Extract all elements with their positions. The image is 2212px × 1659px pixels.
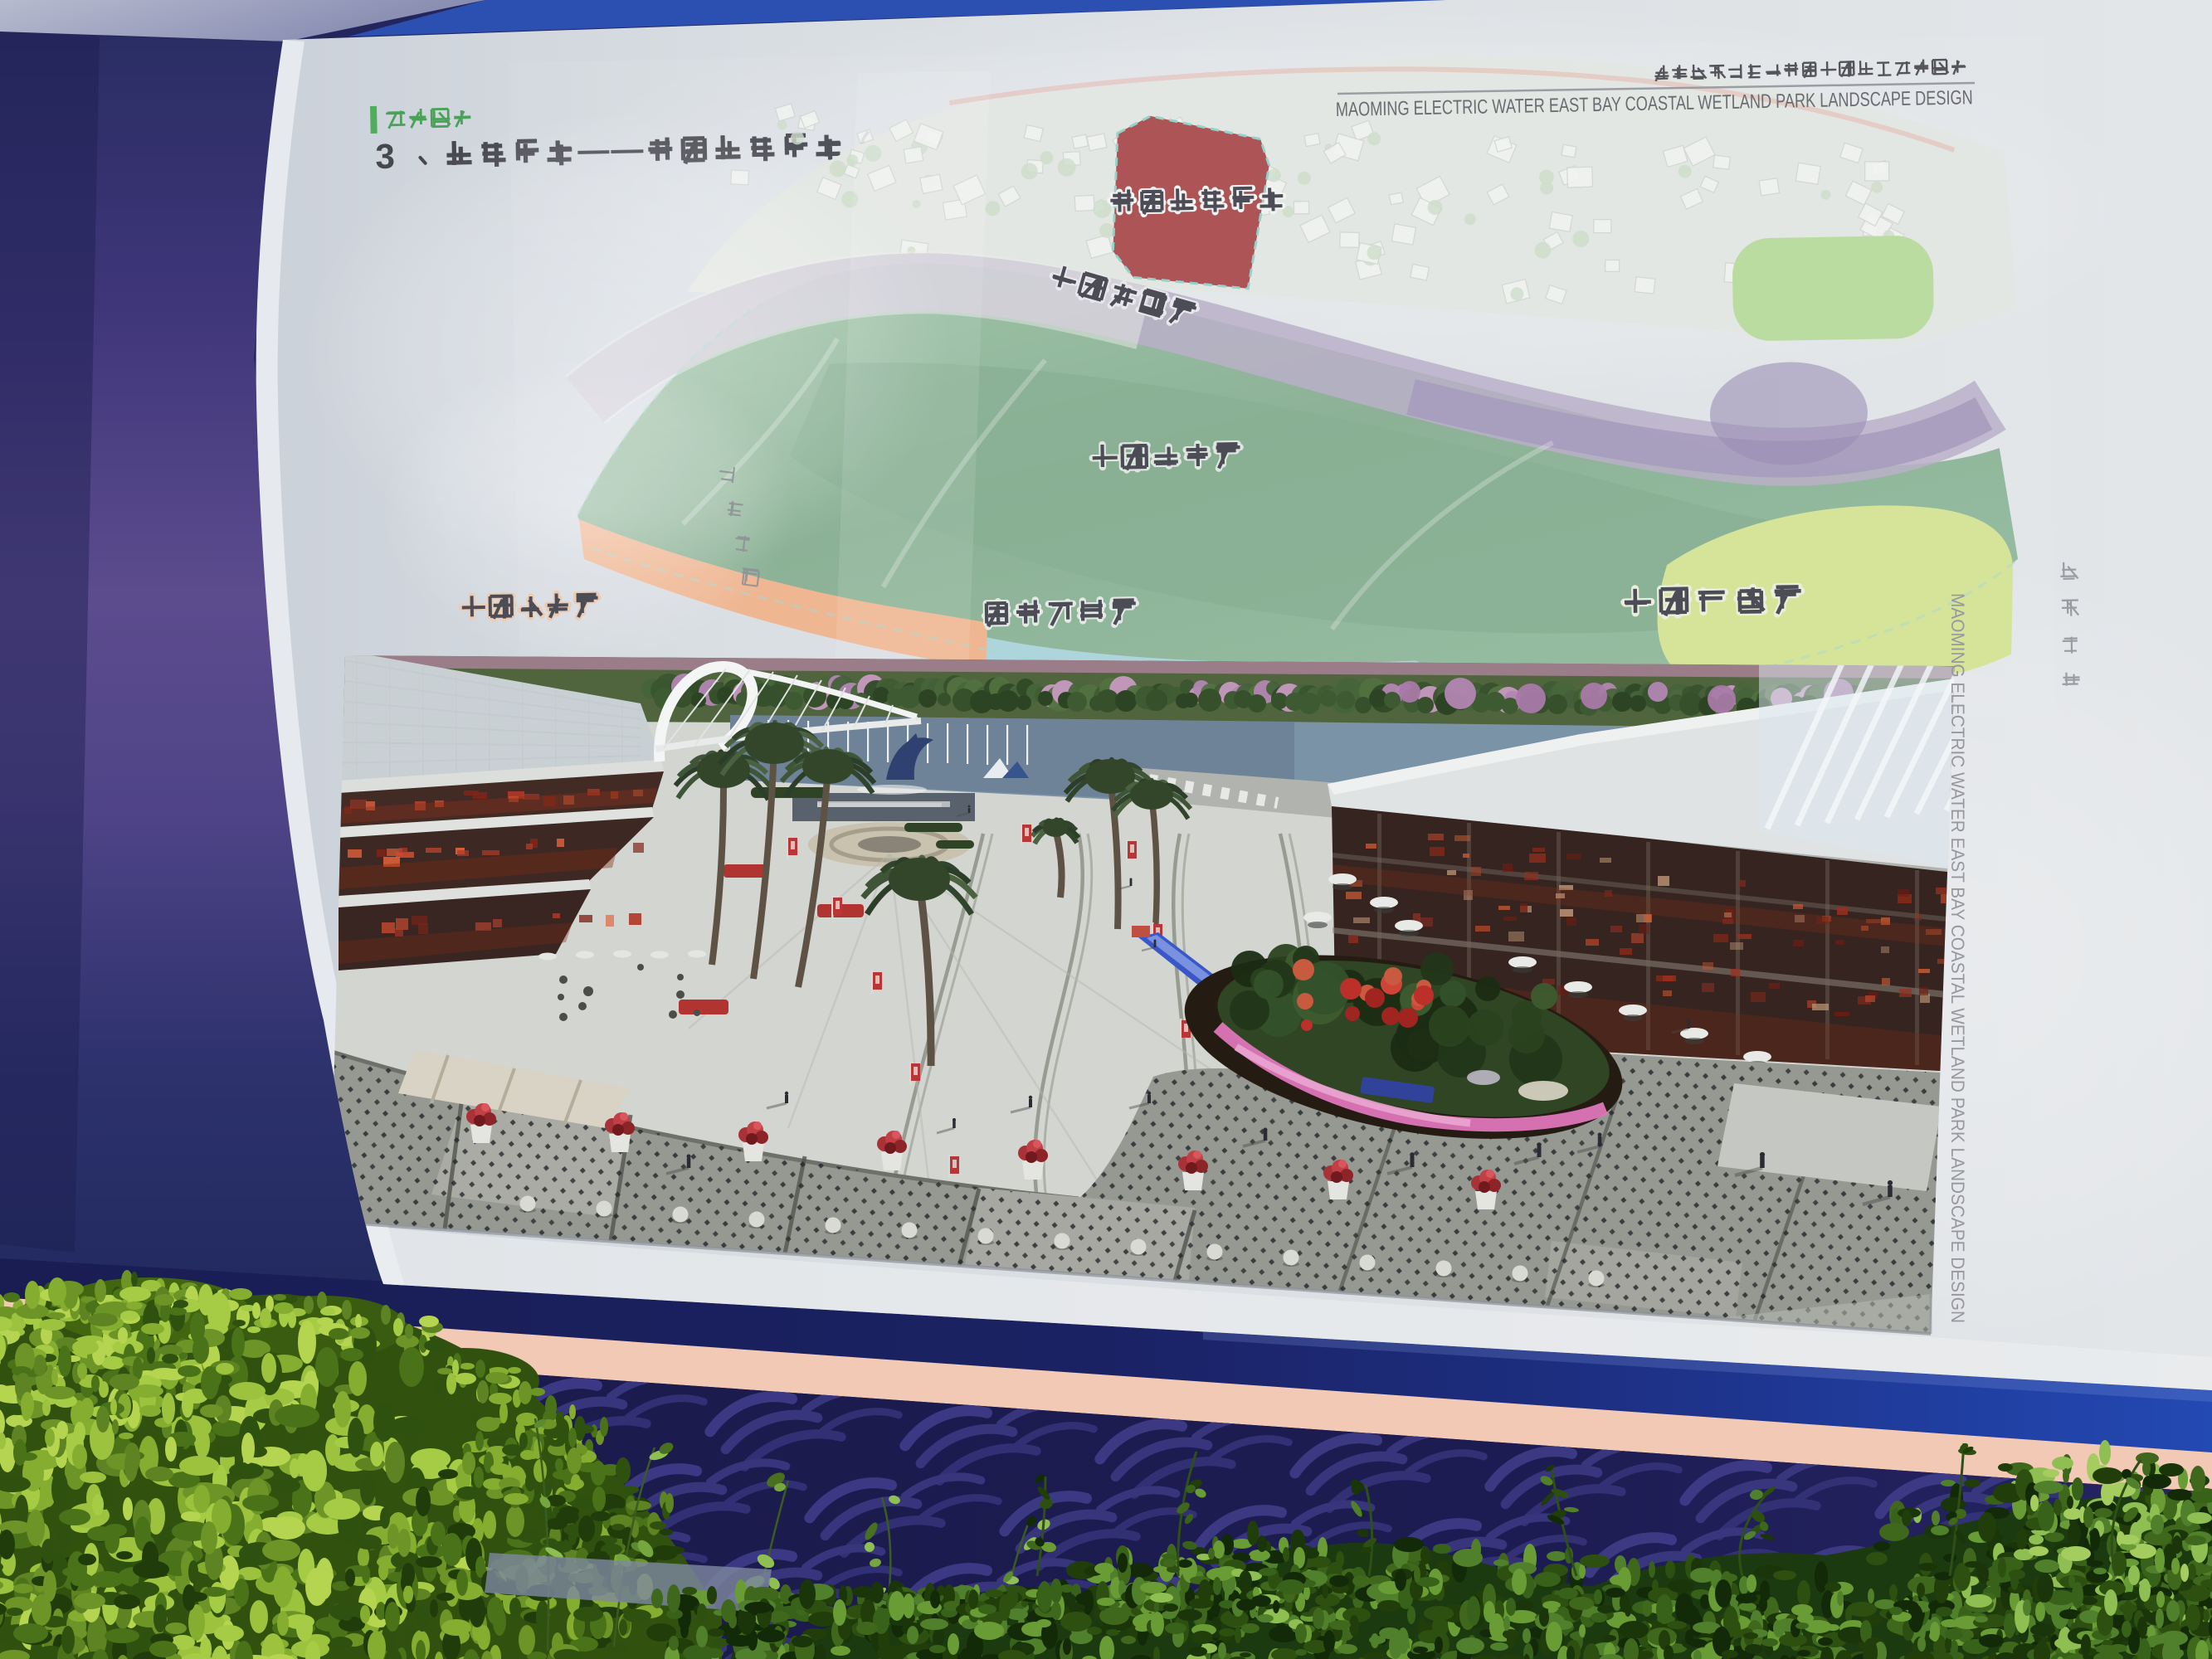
svg-text:3: 3 <box>375 137 395 176</box>
svg-text:MAOMING ELECTRIC WATER EAST BA: MAOMING ELECTRIC WATER EAST BAY COASTAL … <box>1947 593 1968 1323</box>
